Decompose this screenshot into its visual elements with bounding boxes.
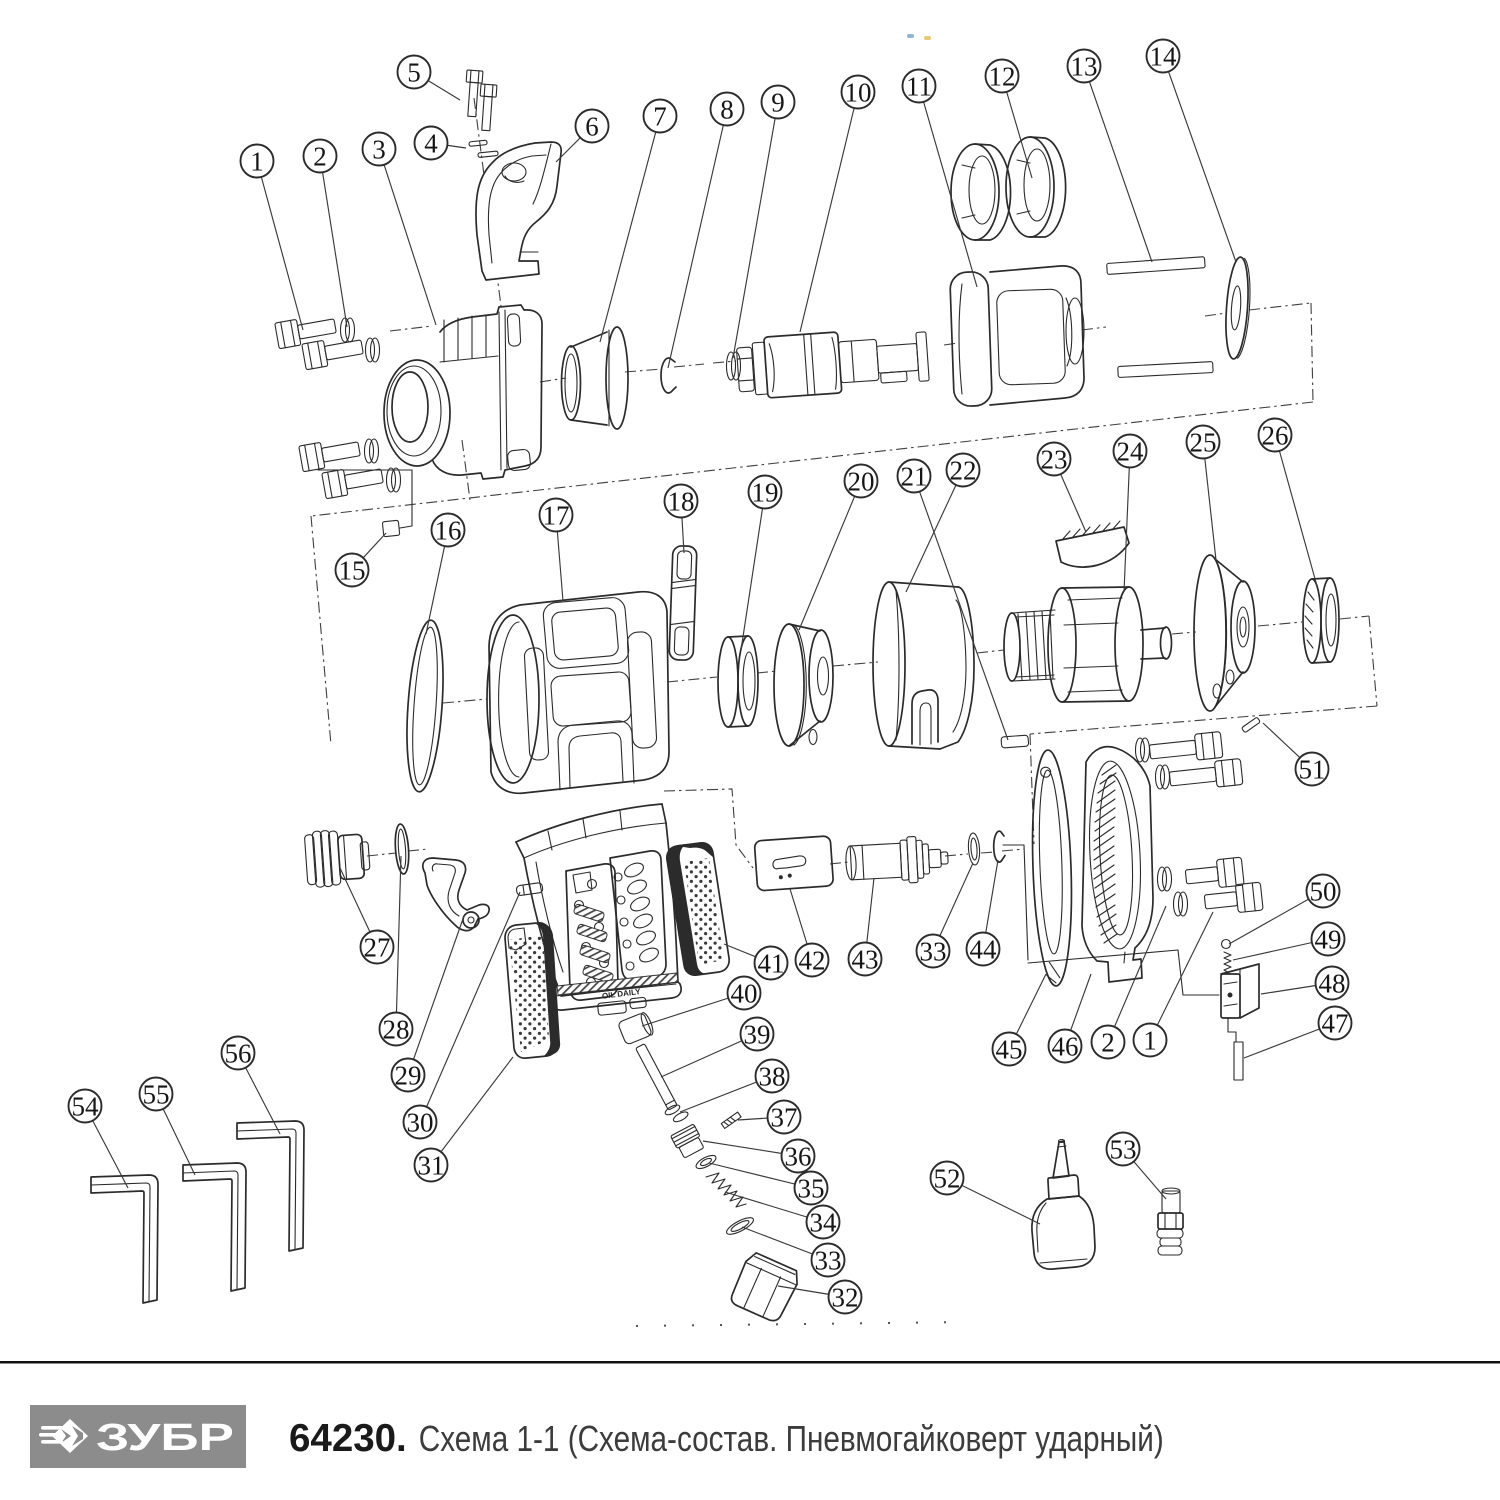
svg-text:2: 2 bbox=[313, 142, 327, 172]
svg-text:28: 28 bbox=[383, 1015, 410, 1045]
svg-text:1: 1 bbox=[1143, 1026, 1157, 1056]
svg-text:43: 43 bbox=[852, 945, 879, 975]
svg-text:32: 32 bbox=[832, 1283, 859, 1313]
svg-text:36: 36 bbox=[785, 1142, 812, 1172]
svg-text:11: 11 bbox=[906, 72, 932, 102]
svg-text:17: 17 bbox=[543, 501, 570, 531]
svg-text:15: 15 bbox=[339, 556, 366, 586]
svg-text:26: 26 bbox=[1262, 421, 1289, 451]
svg-text:51: 51 bbox=[1299, 755, 1326, 785]
svg-text:40: 40 bbox=[731, 979, 758, 1009]
svg-text:30: 30 bbox=[407, 1108, 434, 1138]
svg-text:41: 41 bbox=[758, 949, 785, 979]
svg-text:46: 46 bbox=[1052, 1032, 1079, 1062]
svg-text:53: 53 bbox=[1110, 1135, 1137, 1165]
svg-text:27: 27 bbox=[364, 933, 391, 963]
svg-text:56: 56 bbox=[225, 1039, 252, 1069]
svg-text:34: 34 bbox=[810, 1208, 838, 1238]
svg-text:25: 25 bbox=[1190, 428, 1217, 458]
svg-text:7: 7 bbox=[653, 102, 667, 132]
svg-text:55: 55 bbox=[143, 1080, 170, 1110]
svg-text:29: 29 bbox=[395, 1061, 422, 1091]
svg-text:45: 45 bbox=[996, 1035, 1023, 1065]
svg-text:5: 5 bbox=[407, 58, 421, 88]
svg-text:49: 49 bbox=[1315, 925, 1342, 955]
svg-text:14: 14 bbox=[1150, 42, 1178, 72]
svg-text:8: 8 bbox=[720, 95, 734, 125]
svg-text:47: 47 bbox=[1322, 1009, 1349, 1039]
svg-text:31: 31 bbox=[418, 1151, 445, 1181]
svg-text:16: 16 bbox=[435, 516, 462, 546]
svg-text:3: 3 bbox=[372, 135, 386, 165]
svg-text:64230.Схема 1-1 (Схема-состав.: 64230.Схема 1-1 (Схема-состав. Пневмогай… bbox=[289, 1417, 1164, 1460]
svg-text:22: 22 bbox=[950, 456, 977, 486]
svg-text:50: 50 bbox=[1310, 877, 1337, 907]
svg-text:13: 13 bbox=[1071, 52, 1098, 82]
svg-text:10: 10 bbox=[845, 78, 872, 108]
svg-text:54: 54 bbox=[72, 1092, 100, 1122]
svg-text:6: 6 bbox=[585, 112, 599, 142]
svg-text:19: 19 bbox=[752, 478, 779, 508]
svg-text:4: 4 bbox=[424, 129, 438, 159]
svg-text:39: 39 bbox=[744, 1020, 771, 1050]
svg-text:12: 12 bbox=[989, 62, 1016, 92]
svg-text:20: 20 bbox=[848, 467, 875, 497]
svg-text:52: 52 bbox=[934, 1164, 961, 1194]
svg-text:37: 37 bbox=[771, 1103, 798, 1133]
svg-text:44: 44 bbox=[970, 935, 998, 965]
svg-text:48: 48 bbox=[1319, 969, 1346, 999]
svg-text:35: 35 bbox=[798, 1174, 825, 1204]
svg-text:1: 1 bbox=[250, 147, 264, 177]
svg-text:42: 42 bbox=[799, 946, 826, 976]
svg-text:33: 33 bbox=[815, 1246, 842, 1276]
svg-text:24: 24 bbox=[1117, 437, 1145, 467]
svg-text:33: 33 bbox=[920, 937, 947, 967]
svg-text:ЗУБР: ЗУБР bbox=[96, 1417, 234, 1459]
svg-text:9: 9 bbox=[771, 88, 785, 118]
svg-text:23: 23 bbox=[1041, 445, 1068, 475]
svg-text:38: 38 bbox=[759, 1062, 786, 1092]
svg-text:2: 2 bbox=[1101, 1028, 1115, 1058]
svg-text:18: 18 bbox=[668, 487, 695, 517]
svg-text:21: 21 bbox=[901, 462, 928, 492]
